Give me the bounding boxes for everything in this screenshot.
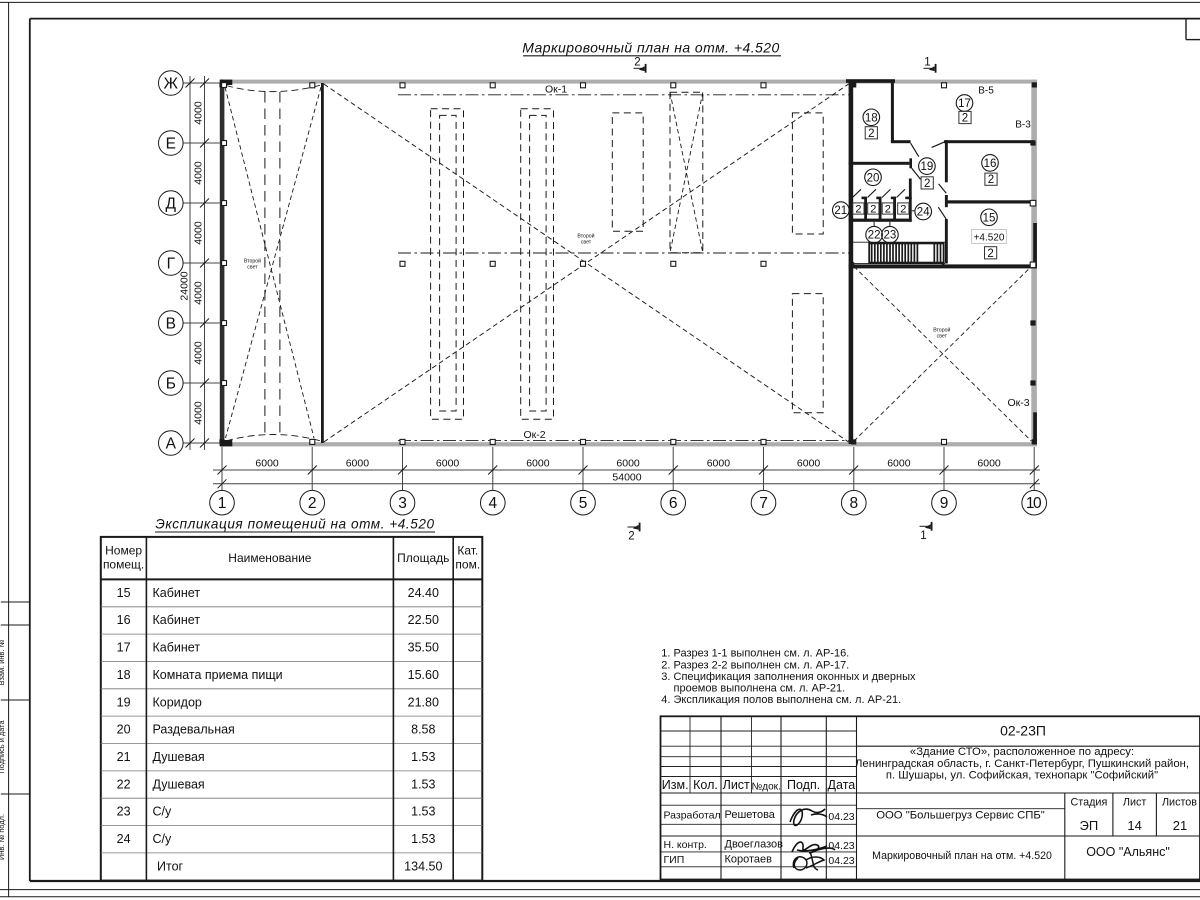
svg-text:2: 2 xyxy=(868,128,874,140)
svg-text:4000: 4000 xyxy=(193,221,205,245)
svg-text:Ж: Ж xyxy=(164,75,179,92)
svg-text:19: 19 xyxy=(921,161,934,173)
svg-text:Лист: Лист xyxy=(1123,796,1147,808)
svg-text:п. Шушары, ул. Софийская, техн: п. Шушары, ул. Софийская, технопарк "Соф… xyxy=(886,770,1158,782)
svg-text:22: 22 xyxy=(868,230,881,242)
svg-text:2. Разрез 2-2 выполнен см. л.: 2. Разрез 2-2 выполнен см. л. АР-17. xyxy=(661,659,849,671)
svg-text:21.80: 21.80 xyxy=(408,695,439,709)
svg-text:Раздевальная: Раздевальная xyxy=(153,723,235,737)
svg-text:6: 6 xyxy=(669,495,678,512)
svg-text:4000: 4000 xyxy=(193,101,205,125)
svg-text:3. Спецификация заполнения око: 3. Спецификация заполнения оконных и две… xyxy=(661,671,916,683)
svg-text:Изм.: Изм. xyxy=(662,778,689,792)
svg-text:24: 24 xyxy=(917,207,930,219)
svg-text:22.50: 22.50 xyxy=(408,613,439,627)
svg-text:15.60: 15.60 xyxy=(408,668,439,682)
svg-text:ЭП: ЭП xyxy=(1080,818,1099,833)
svg-text:1.53: 1.53 xyxy=(411,805,435,819)
svg-text:22: 22 xyxy=(117,777,131,791)
svg-text:6000: 6000 xyxy=(797,458,821,470)
svg-text:4: 4 xyxy=(488,495,497,512)
svg-text:15: 15 xyxy=(117,586,131,600)
svg-text:Кол.: Кол. xyxy=(693,778,718,792)
svg-text:В-5: В-5 xyxy=(978,86,994,97)
svg-text:17: 17 xyxy=(958,98,971,110)
svg-text:свет: свет xyxy=(247,265,258,271)
svg-text:1.53: 1.53 xyxy=(411,832,435,846)
svg-text:Кабинет: Кабинет xyxy=(153,586,201,600)
svg-text:В: В xyxy=(166,315,176,332)
svg-text:ГИП: ГИП xyxy=(664,854,685,866)
svg-text:8: 8 xyxy=(849,495,858,512)
svg-text:1: 1 xyxy=(920,530,926,542)
svg-text:Коротаев: Коротаев xyxy=(725,853,773,865)
svg-text:Ленинградская область, г. Санк: Ленинградская область, г. Санкт-Петербур… xyxy=(855,758,1189,770)
svg-text:1: 1 xyxy=(924,57,930,69)
svg-text:№док.: №док. xyxy=(752,782,781,793)
svg-text:4000: 4000 xyxy=(193,341,205,365)
svg-text:1. Разрез 1-1 выполнен см. л.: 1. Разрез 1-1 выполнен см. л. АР-16. xyxy=(661,648,849,660)
svg-text:Стадия: Стадия xyxy=(1070,796,1107,808)
svg-text:2: 2 xyxy=(987,248,993,260)
svg-text:1.53: 1.53 xyxy=(411,777,435,791)
svg-text:свет: свет xyxy=(581,240,592,246)
svg-text:Инв. № подл.: Инв. № подл. xyxy=(0,814,6,860)
svg-text:Н. контр.: Н. контр. xyxy=(664,839,707,851)
svg-text:Кабинет: Кабинет xyxy=(153,613,201,627)
svg-text:Кабинет: Кабинет xyxy=(153,641,201,655)
svg-text:15: 15 xyxy=(983,212,996,224)
svg-text:54000: 54000 xyxy=(612,471,641,483)
svg-text:20: 20 xyxy=(117,723,131,737)
svg-text:2: 2 xyxy=(628,531,634,543)
svg-text:6000: 6000 xyxy=(616,458,640,470)
svg-text:6000: 6000 xyxy=(436,458,460,470)
svg-text:04.23: 04.23 xyxy=(828,811,854,823)
svg-text:Коридор: Коридор xyxy=(153,695,202,709)
svg-text:Д: Д xyxy=(166,195,177,212)
svg-text:Маркировочный план на отм. +4.: Маркировочный план на отм. +4.520 xyxy=(872,850,1052,862)
svg-text:пом.: пом. xyxy=(455,558,480,572)
svg-text:Кат.: Кат. xyxy=(457,544,478,558)
svg-text:Подпись и дата: Подпись и дата xyxy=(0,720,6,774)
svg-text:Лист: Лист xyxy=(723,778,750,792)
svg-text:6000: 6000 xyxy=(977,458,1001,470)
svg-text:Второй: Второй xyxy=(933,327,950,334)
svg-text:Номер: Номер xyxy=(105,544,142,558)
svg-text:20: 20 xyxy=(867,172,880,184)
svg-text:2: 2 xyxy=(900,203,906,215)
svg-text:3: 3 xyxy=(398,495,407,512)
svg-text:Решетова: Решетова xyxy=(725,809,776,821)
svg-text:Второй: Второй xyxy=(577,233,594,240)
svg-text:свет: свет xyxy=(937,334,948,340)
svg-text:1: 1 xyxy=(218,495,227,512)
svg-text:6000: 6000 xyxy=(526,458,550,470)
svg-text:1.53: 1.53 xyxy=(411,750,435,764)
svg-text:19: 19 xyxy=(117,695,131,709)
svg-text:Двоеглазов: Двоеглазов xyxy=(725,838,784,850)
svg-text:2: 2 xyxy=(870,203,876,215)
svg-text:10: 10 xyxy=(1026,495,1042,512)
svg-text:04.23: 04.23 xyxy=(828,840,854,852)
svg-text:Дата: Дата xyxy=(828,778,856,792)
svg-text:2: 2 xyxy=(988,174,994,186)
svg-text:Разработал: Разработал xyxy=(664,810,721,822)
svg-text:21: 21 xyxy=(117,750,131,764)
svg-text:«Здание СТО», расположенное по: «Здание СТО», расположенное по адресу: xyxy=(910,746,1134,758)
svg-text:8.58: 8.58 xyxy=(411,723,435,737)
svg-text:Г: Г xyxy=(167,255,176,272)
svg-text:Душевая: Душевая xyxy=(153,777,205,791)
svg-text:Площадь: Площадь xyxy=(397,551,449,565)
svg-text:14: 14 xyxy=(1127,818,1141,833)
svg-text:проемов выполнена см. л. АР-21: проемов выполнена см. л. АР-21. xyxy=(674,683,846,695)
svg-text:ООО "Альянс": ООО "Альянс" xyxy=(1086,845,1170,859)
svg-text:Взам. инв. №: Взам. инв. № xyxy=(0,640,6,686)
svg-text:Е: Е xyxy=(166,135,176,152)
svg-text:В-3: В-3 xyxy=(1015,120,1031,131)
svg-text:24000: 24000 xyxy=(178,271,190,300)
svg-text:02-23П: 02-23П xyxy=(1000,723,1046,739)
svg-text:04.23: 04.23 xyxy=(828,855,854,867)
svg-text:С/у: С/у xyxy=(153,832,173,846)
svg-text:4000: 4000 xyxy=(193,161,205,185)
svg-text:2: 2 xyxy=(308,495,317,512)
svg-text:Ок-2: Ок-2 xyxy=(523,429,545,441)
svg-text:Листов: Листов xyxy=(1162,796,1197,808)
svg-text:Второй: Второй xyxy=(244,258,261,265)
svg-text:2: 2 xyxy=(634,57,640,69)
svg-text:6000: 6000 xyxy=(707,458,731,470)
svg-text:Итог: Итог xyxy=(157,859,184,873)
svg-text:Маркировочный план на отм. +4.: Маркировочный план на отм. +4.520 xyxy=(522,40,780,56)
svg-text:7: 7 xyxy=(759,495,768,512)
svg-text:35.50: 35.50 xyxy=(408,641,439,655)
svg-text:Наименование: Наименование xyxy=(228,551,312,565)
svg-text:Душевая: Душевая xyxy=(153,750,205,764)
svg-text:помещ.: помещ. xyxy=(103,558,144,572)
svg-text:24: 24 xyxy=(117,832,131,846)
svg-text:134.50: 134.50 xyxy=(404,859,442,873)
svg-text:Комната приема пищи: Комната приема пищи xyxy=(153,668,283,682)
svg-text:С/у: С/у xyxy=(153,805,173,819)
svg-text:Ок-1: Ок-1 xyxy=(545,84,567,96)
svg-text:16: 16 xyxy=(117,613,131,627)
svg-text:+4.520: +4.520 xyxy=(974,232,1005,243)
svg-text:Б: Б xyxy=(166,375,176,392)
svg-text:Подп.: Подп. xyxy=(787,778,820,792)
svg-text:9: 9 xyxy=(940,495,949,512)
svg-text:Ок-3: Ок-3 xyxy=(1007,397,1029,409)
svg-text:2: 2 xyxy=(962,113,968,125)
svg-text:6000: 6000 xyxy=(346,458,370,470)
svg-text:16: 16 xyxy=(984,158,997,170)
svg-text:17: 17 xyxy=(117,641,131,655)
svg-text:2: 2 xyxy=(855,203,861,215)
svg-text:24.40: 24.40 xyxy=(408,586,439,600)
svg-text:ООО "Большегруз Сервис СПБ": ООО "Большегруз Сервис СПБ" xyxy=(876,810,1045,822)
svg-text:23: 23 xyxy=(117,805,131,819)
svg-text:4000: 4000 xyxy=(193,281,205,305)
svg-text:21: 21 xyxy=(1173,818,1187,833)
svg-text:4000: 4000 xyxy=(193,401,205,425)
svg-text:6000: 6000 xyxy=(255,458,279,470)
svg-text:5: 5 xyxy=(579,495,588,512)
svg-text:18: 18 xyxy=(117,668,131,682)
svg-text:18: 18 xyxy=(865,112,878,124)
svg-text:2: 2 xyxy=(924,178,930,190)
svg-text:Экспликация помещений на отм.: Экспликация помещений на отм. +4.520 xyxy=(155,517,434,532)
svg-text:4. Экспликация полов выполнена: 4. Экспликация полов выполнена см. л. АР… xyxy=(661,694,901,706)
svg-text:21: 21 xyxy=(834,205,847,217)
svg-text:А: А xyxy=(166,435,177,452)
svg-text:23: 23 xyxy=(884,230,897,242)
svg-text:6000: 6000 xyxy=(887,458,911,470)
svg-text:2: 2 xyxy=(885,203,891,215)
